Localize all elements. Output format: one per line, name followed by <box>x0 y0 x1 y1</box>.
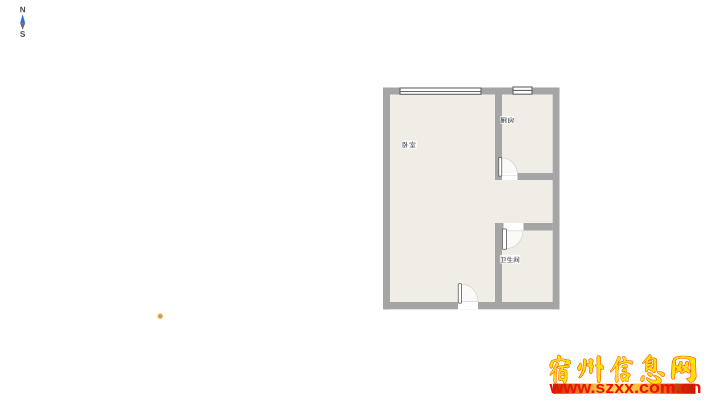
svg-text:www.szxx.com.cn: www.szxx.com.cn <box>548 378 701 397</box>
